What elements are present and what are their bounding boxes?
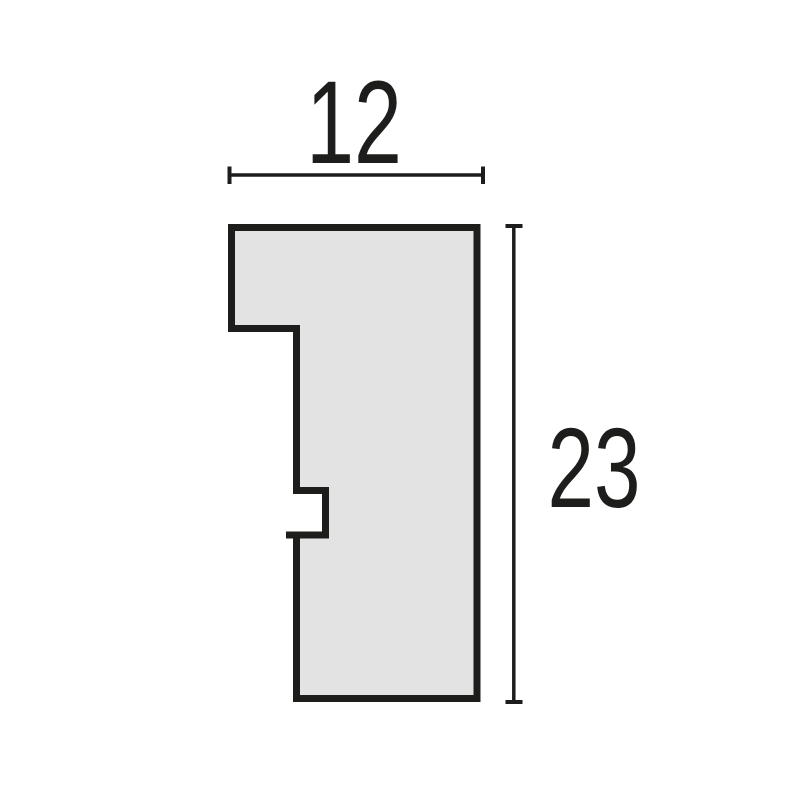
diagram-canvas: 12 23 <box>0 0 800 800</box>
height-dimension-label: 23 <box>547 406 640 532</box>
profile-shape <box>232 228 478 699</box>
profile-diagram: 12 23 <box>0 0 800 800</box>
height-dimension: 23 <box>506 226 641 702</box>
width-dimension-label: 12 <box>306 56 402 189</box>
width-dimension: 12 <box>230 56 484 189</box>
